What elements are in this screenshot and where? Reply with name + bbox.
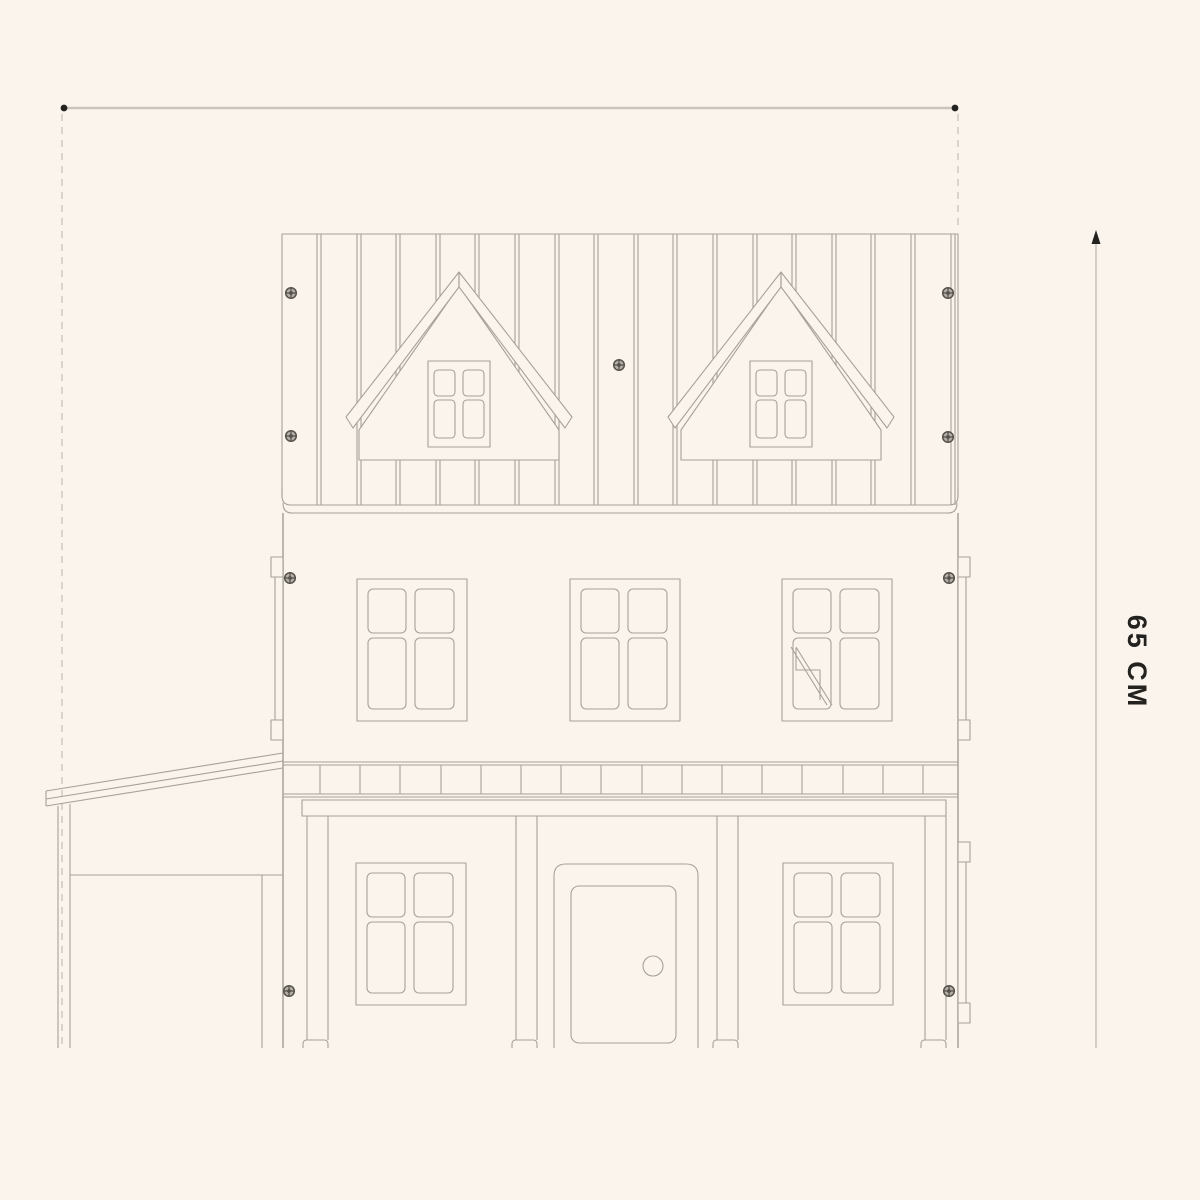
middle-window-center — [570, 579, 680, 721]
deck-band-ticks — [320, 765, 923, 794]
side-porch — [46, 753, 283, 1048]
right-dormer — [668, 272, 894, 460]
height-dimension-label: 65 CM — [1122, 615, 1152, 710]
roof-eave-edge — [282, 488, 958, 505]
door-knob — [643, 956, 663, 976]
height-dimension-arrow — [1092, 230, 1101, 244]
screw-icon — [944, 986, 955, 997]
screw-icon — [944, 573, 955, 584]
front-door — [554, 864, 698, 1048]
screw-icon — [285, 573, 296, 584]
ground-window-left — [356, 863, 466, 1005]
screw-icon — [943, 288, 954, 299]
middle-window-left — [357, 579, 467, 721]
middle-floor — [271, 557, 970, 740]
screw-icon — [614, 360, 625, 371]
ground-right-hinge-strip — [958, 842, 970, 1023]
width-dimension-end-dot — [952, 105, 959, 112]
height-dimension: 65 CM — [1092, 230, 1152, 1048]
width-dimension-start-dot — [61, 105, 68, 112]
screw-icon — [286, 431, 297, 442]
dollhouse-elevation-drawing: 65 CM — [0, 0, 1200, 1200]
screw-icon — [284, 986, 295, 997]
screw-icon — [286, 288, 297, 299]
door-panel — [571, 886, 676, 1043]
left-hinge-strip — [271, 557, 283, 740]
elevation-canvas: 65 CM — [0, 0, 1200, 1200]
porch-post-left — [58, 804, 70, 1048]
porch-header-beam — [302, 800, 946, 816]
ground-floor — [284, 816, 970, 1048]
screw-icon — [943, 432, 954, 443]
left-dormer — [346, 272, 572, 460]
deck-band — [283, 762, 958, 816]
deck-band-edges — [283, 762, 958, 797]
ground-window-right — [783, 863, 893, 1005]
right-hinge-strip — [958, 557, 970, 740]
porch-roof — [46, 753, 283, 806]
